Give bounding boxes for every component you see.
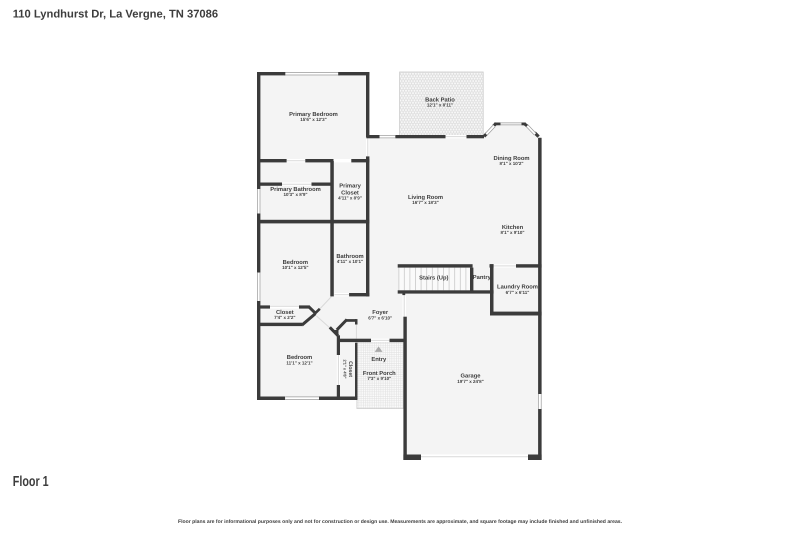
svg-text:Pantry: Pantry [473,275,492,281]
svg-text:15'6" x 12'3": 15'6" x 12'3" [300,117,326,122]
svg-text:110 Lyndhurst Dr, La Vergne, T: 110 Lyndhurst Dr, La Vergne, TN 37086 [13,8,218,20]
svg-text:8'1" x 9'10": 8'1" x 9'10" [501,230,525,235]
svg-text:6'7" x 6'11": 6'7" x 6'11" [506,290,530,295]
svg-text:6'7" x 6'10": 6'7" x 6'10" [368,315,392,320]
svg-text:11'1" x 12'1": 11'1" x 12'1" [286,360,312,365]
svg-text:Floor 1: Floor 1 [13,474,49,490]
svg-text:Stairs (Up): Stairs (Up) [419,275,448,282]
svg-text:4'11" x 8'9": 4'11" x 8'9" [338,195,362,200]
svg-text:19'7" x 24'8": 19'7" x 24'8" [457,379,483,384]
svg-text:10'1" x 12'5": 10'1" x 12'5" [282,265,308,270]
svg-text:Primary: Primary [339,183,361,190]
svg-text:2'1" x 4'8": 2'1" x 4'8" [343,359,348,378]
svg-text:16'7" x 18'3": 16'7" x 18'3" [412,200,438,205]
svg-text:10'3" x 8'9": 10'3" x 8'9" [284,192,308,197]
svg-text:8'1" x 10'2": 8'1" x 10'2" [500,161,524,166]
svg-text:4'11" x 10'1": 4'11" x 10'1" [337,259,363,264]
svg-text:7'3" x 9'10": 7'3" x 9'10" [367,376,391,381]
svg-text:7'4" x 2'2": 7'4" x 2'2" [274,315,295,320]
svg-text:Entry: Entry [371,357,387,363]
svg-text:12'1" x 8'11": 12'1" x 8'11" [427,103,453,108]
svg-text:Floor plans are for informatio: Floor plans are for informational purpos… [178,519,623,525]
